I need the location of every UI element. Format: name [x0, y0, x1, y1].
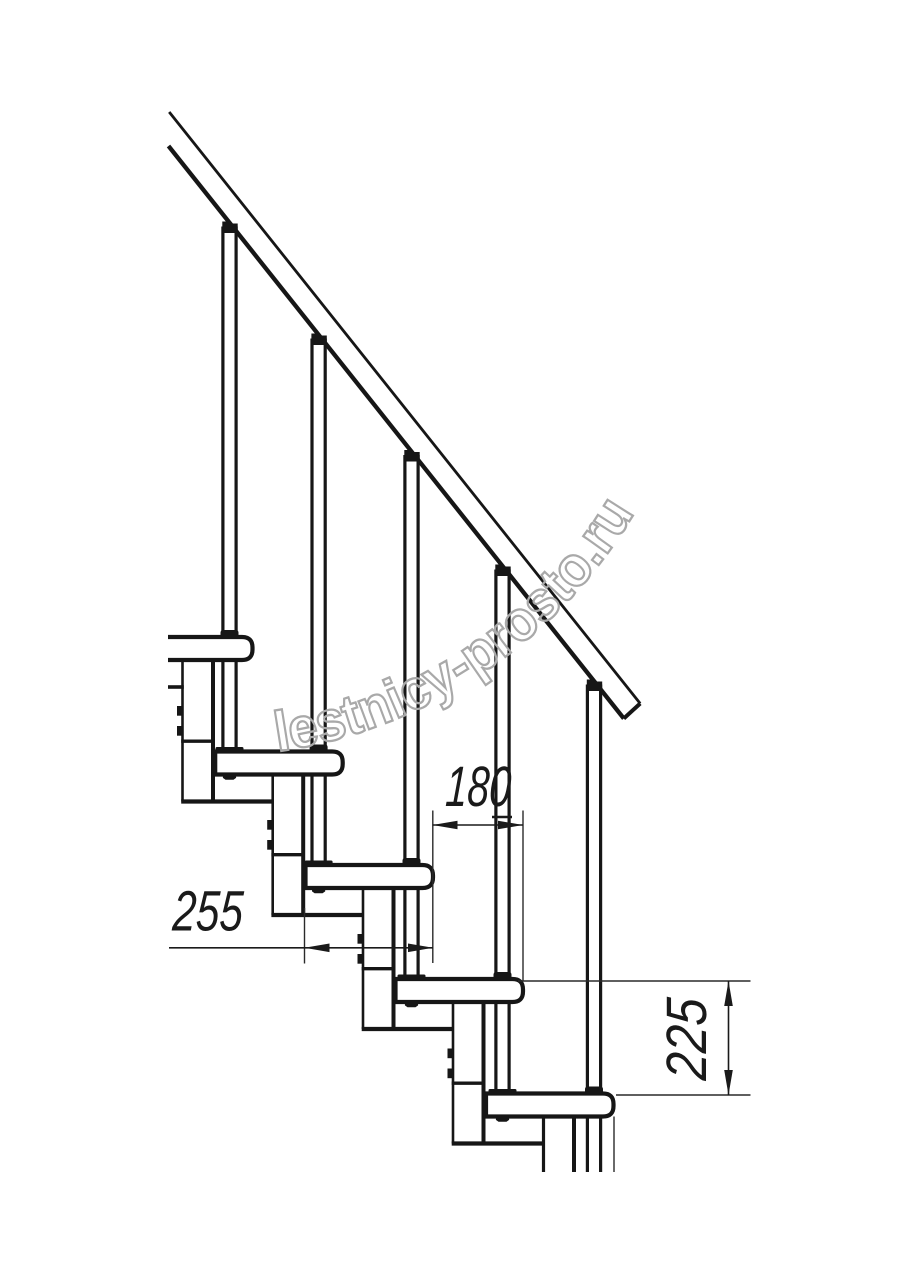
svg-text:255: 255: [170, 879, 245, 943]
svg-text:180: 180: [444, 756, 513, 819]
svg-text:225: 225: [656, 996, 719, 1083]
